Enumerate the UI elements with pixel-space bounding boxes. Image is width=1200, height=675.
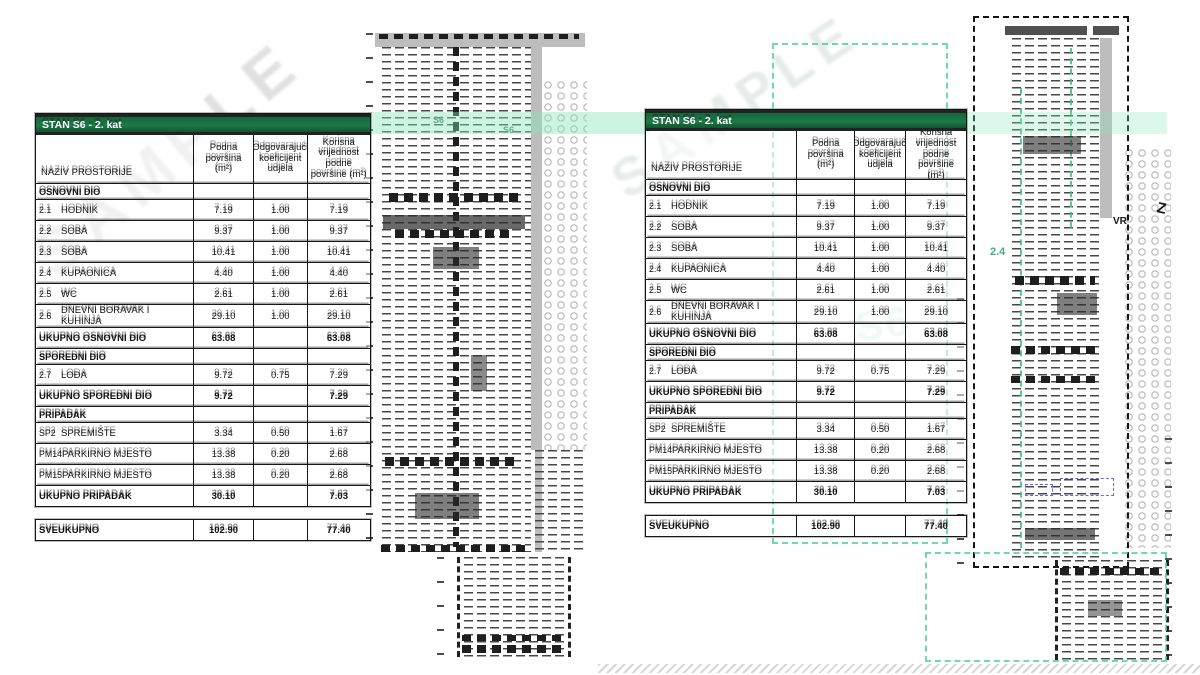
area-value: 29.10 <box>193 305 253 327</box>
total-area: 9.72 <box>796 382 854 402</box>
room-name: 2.7LOĐA <box>36 365 193 385</box>
plan-furniture <box>433 247 479 269</box>
grand-total-value: 77.40 <box>905 516 966 536</box>
coefficient-value: 1.00 <box>854 280 905 300</box>
room-row: 2.3SOBA10.411.0010.41 <box>36 241 370 262</box>
dimension-ticks <box>437 557 444 659</box>
useful-value: 2.68 <box>905 440 966 460</box>
grand-total-area: 102.90 <box>796 516 854 536</box>
room-name: SP2SPREMIŠTE <box>36 423 193 443</box>
useful-value: 2.68 <box>307 465 370 485</box>
total-coef <box>253 328 306 348</box>
table-cell <box>253 349 306 364</box>
coefficient-value: 1.00 <box>854 301 905 323</box>
section-header-row: SPOREDNI DIO <box>36 348 370 364</box>
room-name: 2.5WC <box>36 284 193 304</box>
room-name: 2.5WC <box>646 280 796 300</box>
room-code: 2.4 <box>39 268 61 278</box>
area-value: 29.10 <box>796 301 854 323</box>
room-code: 2.2 <box>649 222 671 232</box>
section-header-row: PRIPADAK <box>646 402 966 418</box>
section-total-row: UKUPNO OSNOVNI DIO63.0863.08 <box>646 323 966 344</box>
section-header: SPOREDNI DIO <box>36 349 193 364</box>
scanned-document-page: SAMPLE SAMPLE S6 S6 S6 <box>0 0 1200 675</box>
useful-value: 1.67 <box>307 423 370 443</box>
room-name: PM15PARKIRNO MJESTO <box>36 465 193 485</box>
room-code: 2.3 <box>39 247 61 257</box>
plan-furniture <box>389 193 519 202</box>
plan-furniture <box>471 355 487 391</box>
room-row: 2.5WC2.611.002.61 <box>36 283 370 304</box>
coefficient-value: 0.50 <box>854 419 905 439</box>
table-cell <box>796 403 854 418</box>
area-value: 2.61 <box>796 280 854 300</box>
coefficient-value: 0.75 <box>253 365 306 385</box>
room-code: PM14 <box>39 449 62 459</box>
useful-value: 4.40 <box>307 263 370 283</box>
table-title: STAN S6 - 2. kat <box>36 114 370 135</box>
table-cell <box>854 403 905 418</box>
room-row: SP2SPREMIŠTE3.340.501.67 <box>646 418 966 439</box>
area-table-left: STAN S6 - 2. katNAZIV PROSTORIJEPodna po… <box>35 113 371 541</box>
useful-value: 2.68 <box>307 444 370 464</box>
plan-annex <box>457 557 571 657</box>
room-name: PM14PARKIRNO MJESTO <box>646 440 796 460</box>
useful-value: 29.10 <box>307 305 370 327</box>
room-name: 2.3SOBA <box>36 242 193 262</box>
section-header-row: SPOREDNI DIO <box>646 344 966 360</box>
plan-furniture <box>395 230 515 238</box>
room-code: SP2 <box>649 424 671 434</box>
total-label: UKUPNO PRIPADAK <box>36 486 193 506</box>
section-total-row: UKUPNO PRIPADAK30.107.03 <box>36 485 370 506</box>
room-code: 2.7 <box>39 370 61 380</box>
room-row: 2.1HODNIK7.191.007.19 <box>36 199 370 220</box>
column-header: Odgovarajući koeficijent udjela <box>854 131 905 179</box>
area-value: 3.34 <box>796 419 854 439</box>
useful-value: 10.41 <box>307 242 370 262</box>
table-cell <box>796 345 854 360</box>
useful-value: 9.37 <box>905 217 966 237</box>
total-value: 7.03 <box>905 482 966 502</box>
total-value: 7.03 <box>307 486 370 506</box>
area-value: 9.37 <box>193 221 253 241</box>
coefficient-value: 0.20 <box>253 444 306 464</box>
room-row: 2.6DNEVNI BORAVAK I KUHINJA29.101.0029.1… <box>646 300 966 323</box>
room-row: 2.5WC2.611.002.61 <box>646 279 966 300</box>
room-name: PM14PARKIRNO MJESTO <box>36 444 193 464</box>
area-value: 13.38 <box>193 444 253 464</box>
coefficient-value: 0.50 <box>253 423 306 443</box>
section-total-row: UKUPNO SPOREDNI DIO9.727.29 <box>36 385 370 406</box>
useful-value: 7.19 <box>905 196 966 216</box>
table-cell <box>307 407 370 422</box>
room-code: 2.6 <box>649 307 671 317</box>
plan-wall <box>379 34 579 39</box>
room-row: PM15PARKIRNO MJESTO13.380.202.68 <box>36 464 370 485</box>
room-name: 2.4KUPAONICA <box>646 259 796 279</box>
room-name: 2.3SOBA <box>646 238 796 258</box>
section-header-row: OSNOVNI DIO <box>36 183 370 199</box>
grand-total-area: 102.90 <box>193 520 253 540</box>
column-header: Podna površina (m²) <box>796 131 854 179</box>
table-title: STAN S6 - 2. kat <box>646 110 966 131</box>
room-row: 2.7LOĐA9.720.757.29 <box>646 360 966 381</box>
coefficient-value: 1.00 <box>854 238 905 258</box>
total-area: 9.72 <box>193 386 253 406</box>
column-header: NAZIV PROSTORIJE <box>36 135 193 183</box>
room-code: 2.1 <box>649 201 671 211</box>
area-value: 13.38 <box>796 461 854 481</box>
total-area: 30.10 <box>796 482 854 502</box>
room-code: PM14 <box>649 445 672 455</box>
grand-total-row: SVEUKUPNO102.9077.40 <box>36 520 370 540</box>
useful-value: 7.19 <box>307 200 370 220</box>
room-code: 2.5 <box>39 289 61 299</box>
coefficient-value: 1.00 <box>253 305 306 327</box>
total-value: 7.29 <box>307 386 370 406</box>
table-cell <box>796 180 854 195</box>
room-row: 2.4KUPAONICA4.401.004.40 <box>36 262 370 283</box>
coefficient-value: 1.00 <box>854 217 905 237</box>
highlight-band <box>965 112 1167 134</box>
area-value: 13.38 <box>796 440 854 460</box>
grand-total-row: SVEUKUPNO102.9077.40 <box>646 516 966 536</box>
column-header: Korisna vrijednost podne površine (m²) <box>905 131 966 179</box>
section-total-row: UKUPNO OSNOVNI DIO63.0863.08 <box>36 327 370 348</box>
coefficient-value: 0.20 <box>854 440 905 460</box>
table-box: STAN S6 - 2. katNAZIV PROSTORIJEPodna po… <box>645 109 967 503</box>
total-value: 7.29 <box>905 382 966 402</box>
table-box: STAN S6 - 2. katNAZIV PROSTORIJEPodna po… <box>35 113 371 507</box>
room-code: PM15 <box>39 470 62 480</box>
total-coef <box>854 324 905 344</box>
room-name: 2.6DNEVNI BORAVAK I KUHINJA <box>646 301 796 323</box>
terrace-pebble-hatch <box>542 80 587 450</box>
table-cell <box>193 184 253 199</box>
coefficient-value: 1.00 <box>854 259 905 279</box>
area-value: 4.40 <box>193 263 253 283</box>
section-header: OSNOVNI DIO <box>36 184 193 199</box>
area-value: 9.72 <box>193 365 253 385</box>
room-name: 2.6DNEVNI BORAVAK I KUHINJA <box>36 305 193 327</box>
column-header: NAZIV PROSTORIJE <box>646 131 796 179</box>
section-header: OSNOVNI DIO <box>646 180 796 195</box>
plan-wall <box>381 545 531 552</box>
area-value: 3.34 <box>193 423 253 443</box>
total-label: UKUPNO SPOREDNI DIO <box>36 386 193 406</box>
section-header: PRIPADAK <box>646 403 796 418</box>
column-header: Podna površina (m²) <box>193 135 253 183</box>
coefficient-value: 1.00 <box>253 200 306 220</box>
grand-total-label: SVEUKUPNO <box>36 520 193 540</box>
room-row: 2.1HODNIK7.191.007.19 <box>646 195 966 216</box>
grand-total-box: SVEUKUPNO102.9077.40 <box>645 515 967 537</box>
useful-value: 2.68 <box>905 461 966 481</box>
area-value: 10.41 <box>193 242 253 262</box>
table-header-row: NAZIV PROSTORIJEPodna površina (m²)Odgov… <box>646 131 966 179</box>
room-name: 2.7LOĐA <box>646 361 796 381</box>
section-header-row: OSNOVNI DIO <box>646 179 966 195</box>
coefficient-value: 1.00 <box>854 196 905 216</box>
room-row: 2.4KUPAONICA4.401.004.40 <box>646 258 966 279</box>
section-header: PRIPADAK <box>36 407 193 422</box>
useful-value: 1.67 <box>905 419 966 439</box>
table-cell <box>905 403 966 418</box>
column-header: Odgovarajući koeficijent udjela <box>253 135 306 183</box>
coefficient-value: 1.00 <box>253 221 306 241</box>
plan-furniture <box>385 457 520 466</box>
area-value: 9.72 <box>796 361 854 381</box>
room-row: 2.2SOBA9.371.009.37 <box>646 216 966 237</box>
table-cell <box>905 180 966 195</box>
useful-value: 2.61 <box>307 284 370 304</box>
room-code: SP2 <box>39 428 61 438</box>
section-header-row: PRIPADAK <box>36 406 370 422</box>
table-cell <box>854 180 905 195</box>
total-label: UKUPNO OSNOVNI DIO <box>646 324 796 344</box>
table-cell <box>253 407 306 422</box>
area-value: 4.40 <box>796 259 854 279</box>
coefficient-value: 1.00 <box>253 242 306 262</box>
coefficient-value: 1.00 <box>253 284 306 304</box>
room-name: PM15PARKIRNO MJESTO <box>646 461 796 481</box>
area-value: 7.19 <box>193 200 253 220</box>
room-row: 2.3SOBA10.411.0010.41 <box>646 237 966 258</box>
room-code: 2.2 <box>39 226 61 236</box>
room-name: 2.1HODNIK <box>646 196 796 216</box>
grand-total-value: 77.40 <box>307 520 370 540</box>
table-cell <box>307 184 370 199</box>
area-value: 10.41 <box>796 238 854 258</box>
room-name: 2.1HODNIK <box>36 200 193 220</box>
column-header: Korisna vrijednost podne površine (m²) <box>307 135 370 183</box>
room-row: SP2SPREMIŠTE3.340.501.67 <box>36 422 370 443</box>
grand-total-label: SVEUKUPNO <box>646 516 796 536</box>
coefficient-value: 0.20 <box>253 465 306 485</box>
total-area: 30.10 <box>193 486 253 506</box>
table-cell <box>193 407 253 422</box>
useful-value: 29.10 <box>905 301 966 323</box>
room-name: 2.2SOBA <box>646 217 796 237</box>
room-name: 2.4KUPAONICA <box>36 263 193 283</box>
area-value: 2.61 <box>193 284 253 304</box>
total-coef <box>854 382 905 402</box>
coefficient-value: 0.75 <box>854 361 905 381</box>
room-code: 2.7 <box>649 366 671 376</box>
total-value: 63.08 <box>905 324 966 344</box>
useful-value: 2.61 <box>905 280 966 300</box>
total-area: 63.08 <box>796 324 854 344</box>
table-cell <box>905 345 966 360</box>
table-spacer <box>645 503 967 515</box>
section-total-row: UKUPNO PRIPADAK30.107.03 <box>646 481 966 502</box>
coefficient-value: 1.00 <box>253 263 306 283</box>
grand-total-coef <box>854 516 905 536</box>
table-cell <box>854 345 905 360</box>
area-value: 9.37 <box>796 217 854 237</box>
room-code: 2.6 <box>39 311 61 321</box>
table-header-row: NAZIV PROSTORIJEPodna površina (m²)Odgov… <box>36 135 370 183</box>
table-cell <box>193 349 253 364</box>
selection-marquee <box>973 16 1129 568</box>
area-value: 7.19 <box>796 196 854 216</box>
useful-value: 10.41 <box>905 238 966 258</box>
grand-total-box: SVEUKUPNO102.9077.40 <box>35 519 371 541</box>
area-value: 13.38 <box>193 465 253 485</box>
useful-value: 7.29 <box>905 361 966 381</box>
useful-value: 9.37 <box>307 221 370 241</box>
useful-value: 7.29 <box>307 365 370 385</box>
room-row: 2.7LOĐA9.720.757.29 <box>36 364 370 385</box>
room-row: 2.6DNEVNI BORAVAK I KUHINJA29.101.0029.1… <box>36 304 370 327</box>
room-row: 2.2SOBA9.371.009.37 <box>36 220 370 241</box>
total-area: 63.08 <box>193 328 253 348</box>
annotation-rect-teal <box>925 552 1167 662</box>
room-name: 2.2SOBA <box>36 221 193 241</box>
total-coef <box>253 386 306 406</box>
room-code: PM15 <box>649 466 672 476</box>
plan-furniture <box>415 493 479 519</box>
grand-total-coef <box>253 520 306 540</box>
room-row: PM14PARKIRNO MJESTO13.380.202.68 <box>646 439 966 460</box>
room-code: 2.1 <box>39 205 61 215</box>
room-code: 2.3 <box>649 243 671 253</box>
room-name: SP2SPREMIŠTE <box>646 419 796 439</box>
section-total-row: UKUPNO SPOREDNI DIO9.727.29 <box>646 381 966 402</box>
table-cell <box>307 349 370 364</box>
section-header: SPOREDNI DIO <box>646 345 796 360</box>
plan-floor-hatch <box>531 450 583 552</box>
total-label: UKUPNO PRIPADAK <box>646 482 796 502</box>
total-coef <box>253 486 306 506</box>
highlight-band <box>368 112 650 134</box>
room-row: PM15PARKIRNO MJESTO13.380.202.68 <box>646 460 966 481</box>
total-coef <box>854 482 905 502</box>
room-row: PM14PARKIRNO MJESTO13.380.202.68 <box>36 443 370 464</box>
table-spacer <box>35 507 371 519</box>
coefficient-value: 0.20 <box>854 461 905 481</box>
total-label: UKUPNO OSNOVNI DIO <box>36 328 193 348</box>
room-code: 2.4 <box>649 264 671 274</box>
total-value: 63.08 <box>307 328 370 348</box>
plan-furniture <box>383 215 525 229</box>
room-code: 2.5 <box>649 285 671 295</box>
area-table-right: STAN S6 - 2. katNAZIV PROSTORIJEPodna po… <box>645 109 967 537</box>
total-label: UKUPNO SPOREDNI DIO <box>646 382 796 402</box>
table-cell <box>253 184 306 199</box>
useful-value: 4.40 <box>905 259 966 279</box>
